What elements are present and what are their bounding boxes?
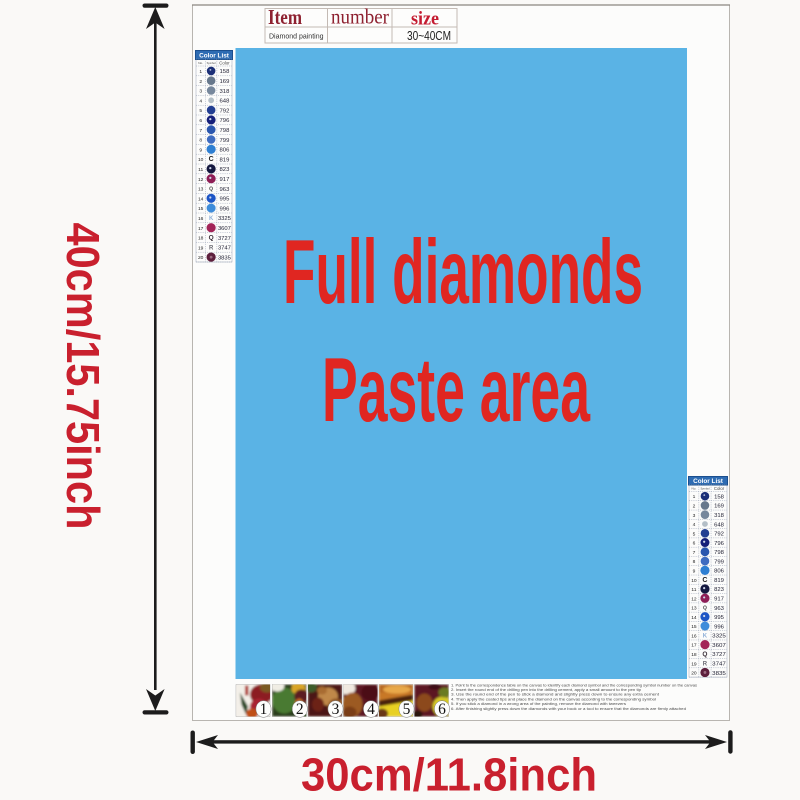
svg-text:4. Then apply the coated tips: 4. Then apply the coated tips and place …	[451, 697, 656, 701]
svg-text:158: 158	[220, 69, 231, 75]
svg-text:8: 8	[199, 138, 202, 144]
svg-text:19: 19	[198, 245, 204, 251]
svg-text:Paste area: Paste area	[322, 340, 591, 441]
svg-text:Q: Q	[209, 235, 214, 242]
svg-text:917: 917	[220, 177, 230, 183]
svg-text:17: 17	[198, 226, 204, 232]
svg-text:12: 12	[198, 177, 204, 183]
svg-text:No.: No.	[198, 61, 203, 65]
svg-text:30~40CM: 30~40CM	[407, 29, 451, 43]
svg-text:917: 917	[714, 597, 724, 603]
svg-text:No.: No.	[692, 487, 697, 491]
svg-text:Full diamonds: Full diamonds	[283, 222, 643, 323]
svg-text:2. Insert the round end of the: 2. Insert the round end of the drilling …	[451, 688, 641, 692]
svg-text:6: 6	[199, 118, 202, 124]
svg-text:798: 798	[220, 128, 231, 134]
svg-text:2: 2	[693, 504, 696, 510]
svg-text:796: 796	[714, 541, 725, 547]
svg-text:6. After finishing slightly pr: 6. After finishing slightly press down t…	[451, 707, 686, 711]
svg-text:3: 3	[199, 89, 202, 95]
svg-text:318: 318	[220, 89, 231, 95]
svg-text:169: 169	[714, 504, 724, 510]
svg-text:K: K	[209, 216, 214, 222]
svg-text:1: 1	[693, 494, 696, 500]
svg-text:12: 12	[691, 596, 697, 602]
svg-text:Q: Q	[703, 606, 707, 612]
svg-text:823: 823	[714, 587, 725, 593]
svg-text:648: 648	[714, 522, 725, 528]
svg-text:20: 20	[691, 671, 697, 677]
svg-text:20: 20	[198, 255, 204, 261]
svg-text:3. Use the round end of the pe: 3. Use the round end of the pen to stick…	[451, 693, 659, 697]
svg-text:799: 799	[714, 559, 724, 565]
svg-text:K: K	[703, 633, 708, 639]
svg-text:996: 996	[714, 624, 725, 630]
svg-text:996: 996	[220, 206, 231, 212]
svg-text:806: 806	[220, 148, 231, 154]
svg-text:Item: Item	[268, 5, 302, 29]
svg-text:4: 4	[199, 98, 202, 104]
svg-text:3607: 3607	[218, 226, 231, 232]
svg-text:17: 17	[691, 643, 697, 649]
svg-text:7: 7	[693, 550, 696, 556]
svg-text:18: 18	[691, 652, 697, 658]
svg-text:648: 648	[220, 99, 231, 105]
svg-text:3727: 3727	[712, 652, 726, 658]
svg-text:1: 1	[199, 69, 202, 75]
svg-text:3325: 3325	[218, 216, 232, 222]
svg-text:19: 19	[691, 661, 697, 667]
svg-text:30cm/11.8inch: 30cm/11.8inch	[301, 749, 597, 800]
svg-text:318: 318	[714, 513, 725, 519]
svg-text:819: 819	[220, 157, 230, 163]
svg-text:16: 16	[198, 216, 204, 222]
svg-text:995: 995	[220, 197, 231, 203]
svg-text:3727: 3727	[218, 236, 231, 242]
svg-text:963: 963	[714, 606, 725, 612]
svg-text:13: 13	[198, 187, 204, 193]
svg-text:18: 18	[198, 236, 204, 242]
svg-text:3835: 3835	[218, 255, 232, 261]
svg-text:1. Point to the correspondence: 1. Point to the correspondence table on …	[451, 683, 697, 687]
svg-text:11: 11	[691, 587, 696, 593]
svg-text:2: 2	[296, 701, 304, 718]
svg-text:4: 4	[367, 701, 375, 718]
svg-text:R: R	[209, 245, 214, 251]
svg-text:3: 3	[332, 701, 340, 718]
svg-text:Q: Q	[702, 651, 707, 658]
svg-text:9: 9	[693, 568, 696, 574]
svg-text:8: 8	[693, 559, 696, 565]
svg-text:10: 10	[198, 157, 204, 163]
svg-text:5. If you stick a diamond in a: 5. If you stick a diamond in a wrong are…	[451, 702, 626, 706]
svg-text:6: 6	[693, 541, 696, 547]
svg-text:14: 14	[198, 196, 204, 202]
svg-text:806: 806	[714, 569, 725, 575]
svg-text:963: 963	[220, 187, 231, 193]
svg-text:799: 799	[220, 138, 230, 144]
svg-text:number: number	[331, 5, 389, 29]
svg-text:6: 6	[438, 701, 446, 718]
svg-text:14: 14	[691, 615, 697, 621]
svg-text:3747: 3747	[712, 661, 726, 667]
svg-text:792: 792	[714, 532, 724, 538]
svg-text:13: 13	[691, 606, 697, 612]
svg-text:11: 11	[198, 167, 203, 173]
svg-text:10: 10	[691, 578, 697, 584]
svg-text:15: 15	[691, 624, 697, 630]
svg-text:3325: 3325	[712, 634, 726, 640]
svg-text:Symbol: Symbol	[207, 61, 216, 65]
svg-text:15: 15	[198, 206, 204, 212]
svg-text:792: 792	[220, 108, 230, 114]
svg-text:3607: 3607	[712, 643, 726, 649]
svg-text:798: 798	[714, 550, 725, 556]
svg-text:Diamond painting: Diamond painting	[269, 34, 324, 41]
svg-text:2: 2	[199, 79, 202, 85]
svg-text:169: 169	[220, 79, 230, 85]
svg-text:C: C	[209, 156, 214, 163]
svg-text:Color List: Color List	[199, 52, 230, 59]
svg-text:16: 16	[691, 633, 697, 639]
svg-text:Q: Q	[209, 187, 213, 193]
svg-text:7: 7	[199, 128, 202, 134]
svg-text:5: 5	[403, 701, 411, 718]
svg-text:5: 5	[693, 531, 696, 537]
svg-text:9: 9	[199, 147, 202, 153]
svg-text:3747: 3747	[218, 246, 231, 252]
svg-text:819: 819	[714, 578, 724, 584]
svg-text:995: 995	[714, 615, 725, 621]
svg-text:5: 5	[199, 108, 202, 114]
svg-text:158: 158	[714, 494, 725, 500]
svg-text:Color List: Color List	[693, 478, 724, 485]
svg-text:3: 3	[693, 513, 696, 519]
svg-text:Color: Color	[219, 61, 230, 66]
svg-text:4: 4	[693, 522, 696, 528]
svg-text:3835: 3835	[712, 671, 726, 677]
svg-text:1: 1	[260, 701, 268, 718]
svg-text:823: 823	[220, 167, 231, 173]
svg-text:R: R	[703, 661, 708, 667]
svg-text:796: 796	[220, 118, 231, 124]
svg-text:40cm/15.75inch: 40cm/15.75inch	[57, 223, 109, 530]
svg-text:Symbol: Symbol	[700, 487, 709, 491]
svg-text:Color: Color	[714, 486, 725, 491]
svg-text:size: size	[411, 9, 439, 30]
svg-text:C: C	[702, 577, 707, 584]
